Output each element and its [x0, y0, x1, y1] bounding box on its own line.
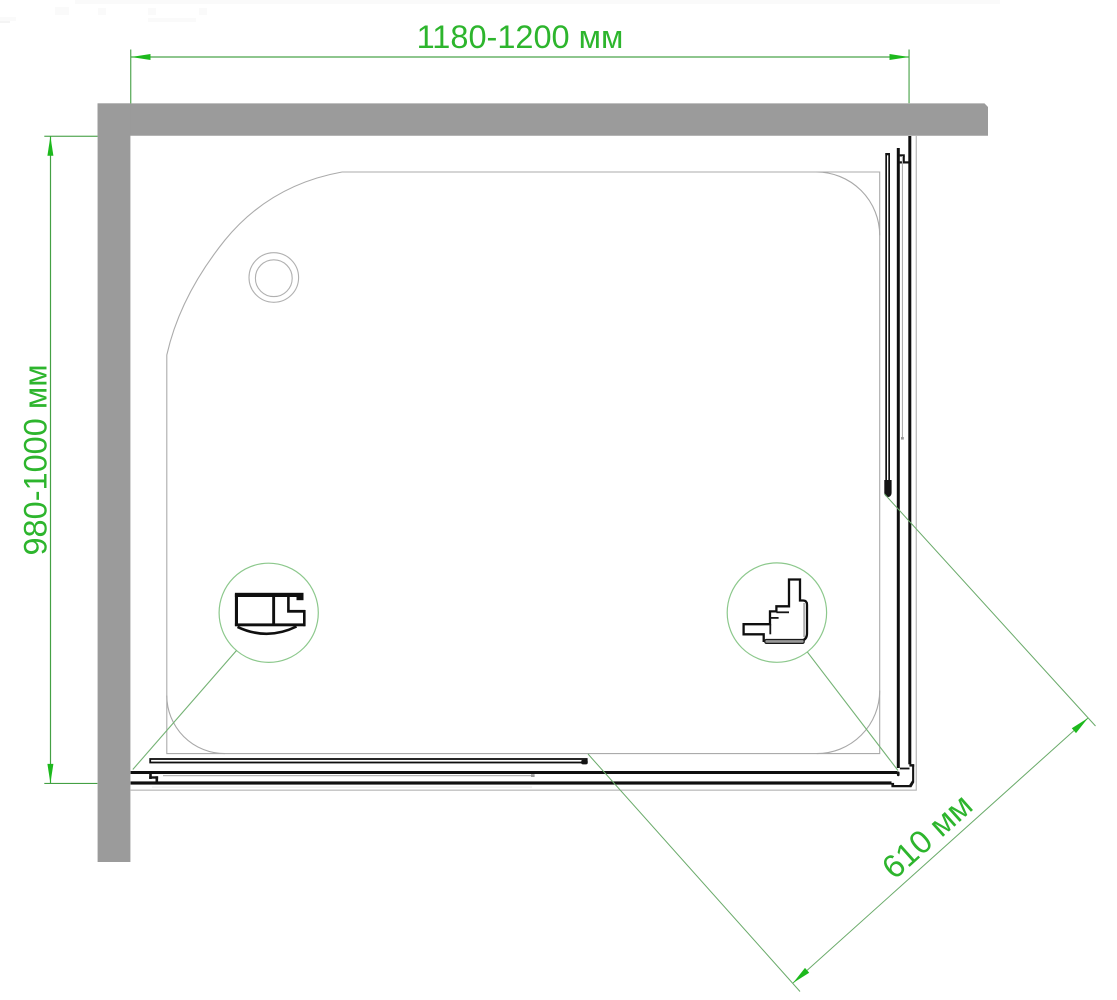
svg-text:980-1000 мм: 980-1000 мм	[18, 364, 54, 555]
svg-text:1180-1200 мм: 1180-1200 мм	[417, 19, 624, 55]
